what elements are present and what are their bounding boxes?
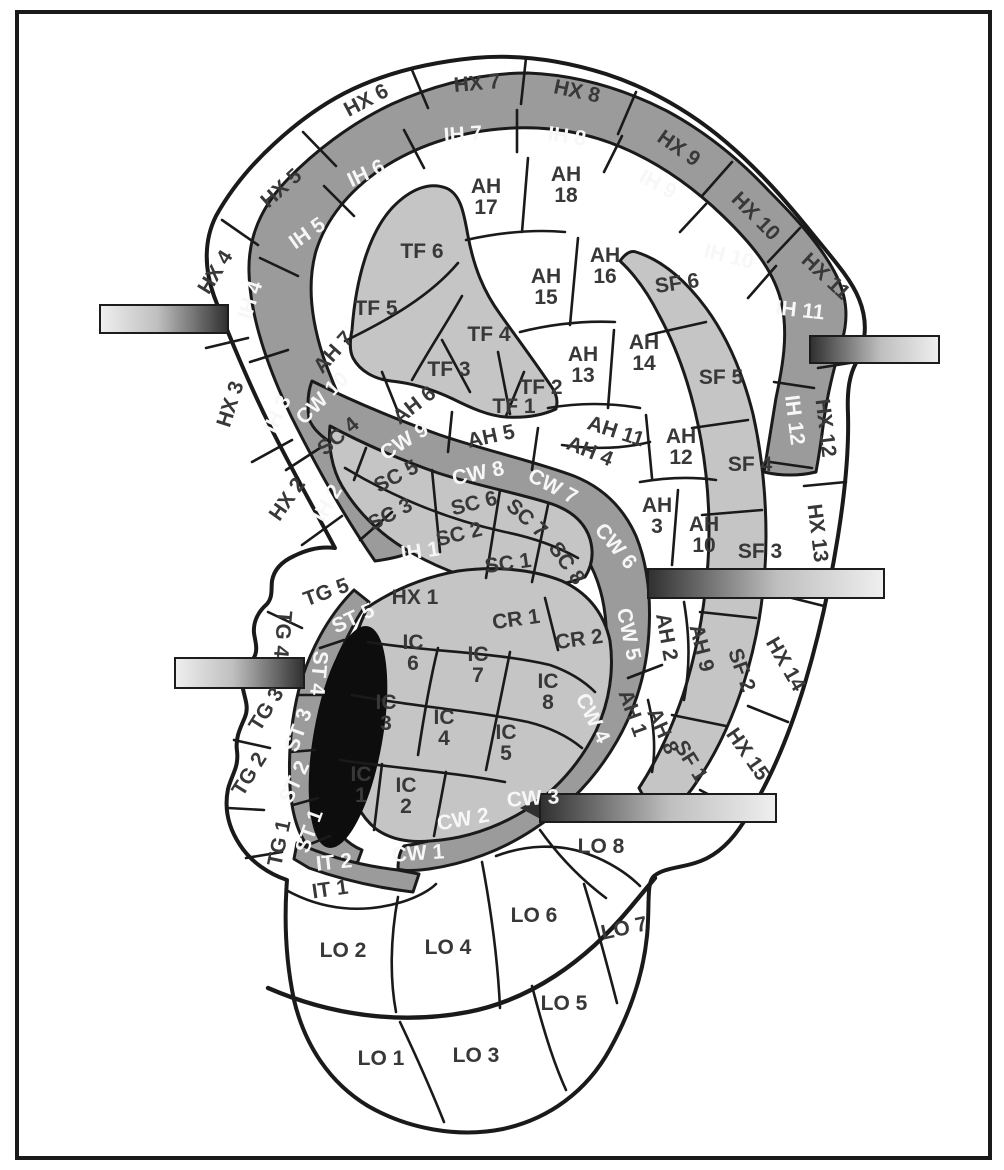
zone-label-ah-18: AH18 [551, 163, 581, 207]
scanned-figure-page: HX 1HX 2HX 3HX 4HX 5HX 6HX 7HX 8HX 9HX 1… [0, 0, 1004, 1170]
zone-label-lo-6: LO 6 [511, 904, 558, 927]
zone-label-ah-14: AH14 [629, 331, 659, 375]
zone-label-it-2: IT 2 [315, 849, 353, 876]
pin-marker-3 [648, 569, 884, 598]
zone-label-ah-13: AH13 [568, 343, 598, 387]
zone-label-cw-1: CW 1 [391, 840, 445, 867]
pin-marker-5 [540, 794, 776, 822]
zone-label-cw-3: CW 3 [506, 785, 560, 812]
zone-label-hx-1: HX 1 [392, 586, 439, 609]
zone-label-lo-5: LO 5 [541, 992, 588, 1015]
zone-label-lo-3: LO 3 [453, 1044, 500, 1067]
zone-label-hx-7: HX 7 [453, 70, 502, 97]
zone-label-tf-2: TF 2 [519, 376, 562, 399]
zone-label-lo-8: LO 8 [578, 835, 625, 858]
zone-label-tf-5: TF 5 [354, 297, 397, 320]
zone-label-lo-1: LO 1 [358, 1047, 405, 1070]
zone-label-ah-12: AH12 [666, 425, 696, 469]
zone-label-tg-4: TG 4 [269, 610, 296, 659]
zone-label-sf-3: SF 3 [738, 540, 782, 563]
zone-label-ah-10: AH10 [689, 513, 719, 557]
pin-marker-2 [810, 336, 939, 363]
pin-marker-1 [100, 305, 228, 333]
zone-label-lo-2: LO 2 [320, 939, 367, 962]
zone-label-sf-4: SF 4 [728, 453, 773, 476]
zone-label-lo-4: LO 4 [425, 936, 472, 959]
zone-label-ih-7: IH 7 [443, 122, 483, 148]
zone-label-ah-15: AH15 [531, 265, 561, 309]
zone-label-tf-3: TF 3 [427, 358, 470, 381]
pin-marker-4 [175, 658, 304, 688]
zone-label-sf-5: SF 5 [699, 366, 744, 389]
zone-label-tf-4: TF 4 [467, 323, 510, 346]
zone-label-st-4: ST 4 [305, 650, 332, 697]
zone-label-ah-16: AH16 [590, 244, 620, 288]
zone-label-tf-6: TF 6 [400, 240, 443, 263]
auricular-zone-map: HX 1HX 2HX 3HX 4HX 5HX 6HX 7HX 8HX 9HX 1… [0, 0, 1004, 1170]
zone-label-hx-3: HX 3 [212, 378, 248, 430]
zone-label-ah-17: AH17 [471, 175, 501, 219]
